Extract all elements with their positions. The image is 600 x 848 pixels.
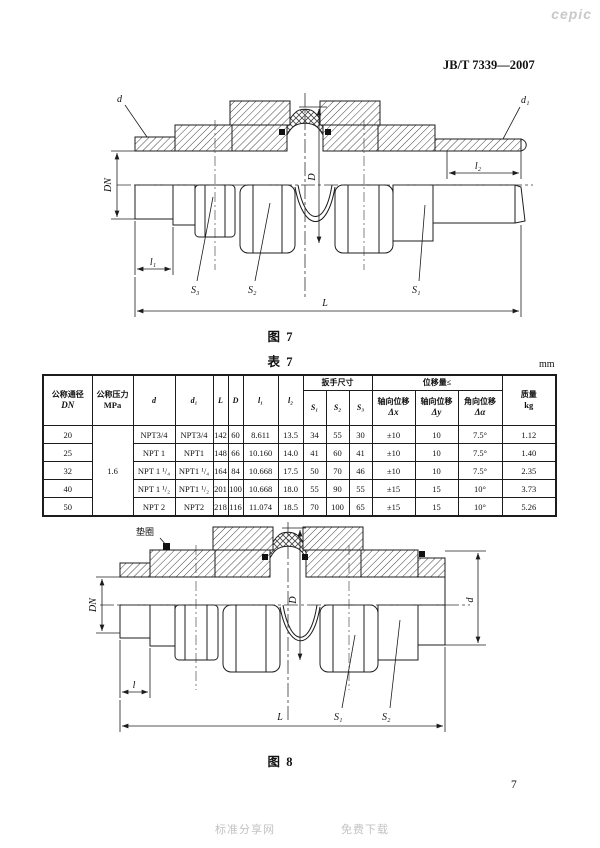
cepic-watermark: cepic [551,6,592,22]
fig8-label-d: d [465,597,476,603]
fig8-label-L: L [276,712,283,723]
col-header-s3: S₃ [349,391,372,426]
table-7: 公称通径DN 公称压力MPa d d₁ L D l₁ l₂ 扳手尺寸 位移量≤ … [42,374,557,517]
col-group-wrench: 扳手尺寸 [303,375,372,391]
col-header-D: D [228,375,243,426]
figure-7-caption: 图 7 [235,326,325,345]
col-header-L: L [213,375,228,426]
seal-right [302,554,308,560]
seal-left [279,129,285,135]
fig7-label-s1: S₁ [412,285,420,296]
col-header-l1: l₁ [243,375,278,426]
document-page: cepic JB/T 7339—2007 [0,0,600,848]
figure-8-drawing: 垫圈 DN D d l S₁ S₂ L [70,520,570,748]
col-header-s1: S₁ [303,391,326,426]
fig8-label-l: l [133,680,136,691]
unit-label: mm [539,359,555,370]
standard-number: JB/T 7339—2007 [443,58,535,73]
col-header-d1: d₁ [175,375,213,426]
fig7-section-top [135,101,526,151]
fig7-label-D: D [307,173,318,182]
fig7-label-s2: S₂ [248,285,257,296]
fig8-label-dn: DN [88,597,99,613]
col-header-pressure: 公称压力MPa [92,375,133,426]
fig8-label-s2: S₂ [382,712,391,723]
col-header-d: d [133,375,175,426]
figure-7-drawing: d d₁ DN D l₂ l₁ S₃ S₂ S₁ L [95,85,540,327]
fig7-label-dn: DN [103,177,114,193]
fig7-label-d1: d₁ [521,95,529,106]
table-row: 20 1.6 NPT3/4NPT3/4 14260 8.61113.5 3455… [43,426,556,444]
fig8-label-D: D [288,596,299,605]
pressure-value-cell: 1.6 [92,426,133,517]
col-header-dy: 轴向位移Δy [415,391,458,426]
seal-outer [419,551,425,557]
figure-8-caption: 图 8 [235,751,325,770]
fig7-outline-bottom [135,185,525,253]
col-header-s2: S₂ [326,391,349,426]
col-header-mass: 质量kg [502,375,556,426]
fig7-label-l2: l₂ [475,161,482,172]
table-7-caption: 表 7 [235,351,325,370]
footer-download-watermark: 免费下载 [341,821,389,837]
seal-right [325,129,331,135]
fig7-label-d: d [117,94,123,105]
footer-site-watermark: 标准分享网 [215,821,275,837]
fig7-label-L: L [321,298,328,309]
hex-nut-s2 [240,185,295,253]
col-header-da: 角向位移Δα [458,391,502,426]
col-group-displacement: 位移量≤ [372,375,502,391]
page-number: 7 [511,779,517,791]
fig8-label-s1: S₁ [334,712,342,723]
col-header-dn: 公称通径DN [43,375,92,426]
col-header-dx: 轴向位移Δx [372,391,415,426]
fig7-label-s3: S₃ [191,285,200,296]
col-header-l2: l₂ [278,375,303,426]
gasket-seal [163,543,170,550]
fig8-label-gasket: 垫圈 [136,526,154,537]
fig7-label-l1: l₁ [150,257,156,268]
fig8-outline-bottom [120,605,445,672]
hex-nut [175,605,218,660]
hex-nut [223,605,280,672]
seal-left [262,554,268,560]
